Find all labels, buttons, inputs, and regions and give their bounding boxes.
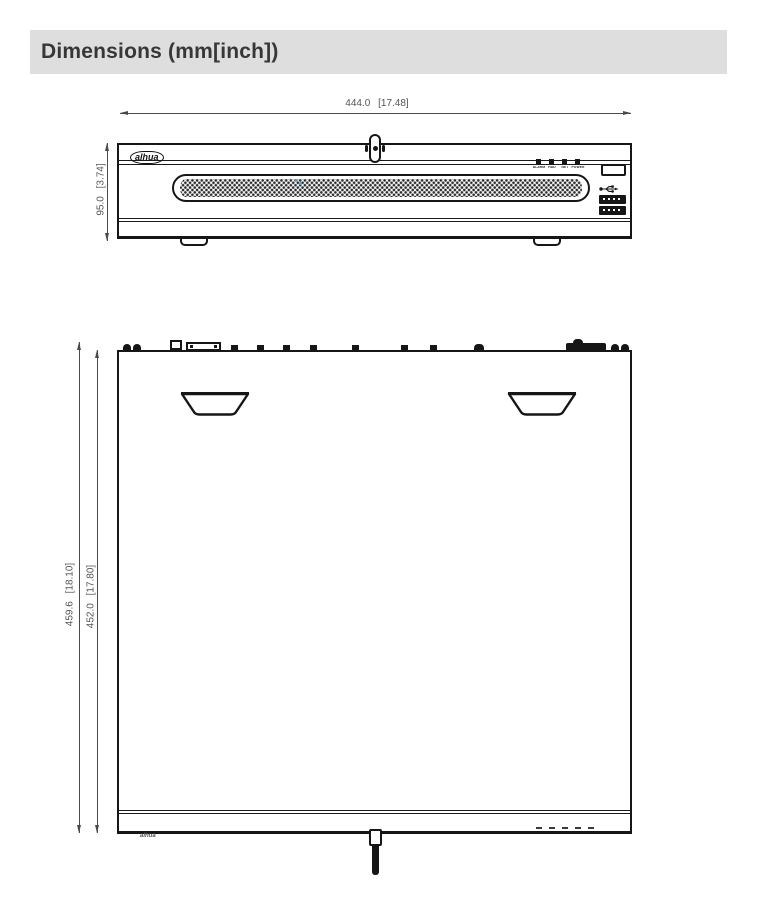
status-dot (295, 179, 298, 182)
usb-pins (603, 198, 622, 200)
bezel-mark (549, 827, 555, 829)
bezel-mark (536, 827, 542, 829)
top-depth-inner-dimension: 452.0 [17.80] (86, 557, 97, 637)
extension-line (100, 142, 117, 143)
brand-logo: alhua (130, 147, 164, 165)
bezel-mark (588, 827, 594, 829)
rear-connector-square (170, 340, 182, 350)
vent-handle-left (179, 391, 251, 418)
arrowhead-down (105, 233, 109, 241)
brand-logo-top-text: alhua (140, 833, 156, 839)
extension-line (100, 240, 117, 241)
usb-pins (603, 209, 622, 211)
led-hdd (549, 159, 554, 164)
arrowhead-down (95, 825, 99, 833)
section-header: Dimensions (mm[inch]) (30, 30, 727, 74)
dimension-line-depth-inner (97, 350, 98, 833)
device-foot-left (180, 239, 208, 246)
led-net (562, 159, 567, 164)
ir-receiver-window (601, 164, 626, 176)
extension-line (72, 341, 574, 342)
panel-seam-line (119, 218, 630, 219)
bezel-seam-line (119, 813, 630, 814)
vent-handle-right (506, 391, 578, 418)
dimensions-diagram-page: Dimensions (mm[inch]) 444.0 [17.48] 95.0… (0, 0, 757, 909)
device-foot-right (533, 239, 561, 246)
top-depth-outer-dimension: 459.6 [18.10] (65, 555, 76, 635)
page-title: Dimensions (mm[inch]) (41, 40, 279, 64)
usb-port-2 (599, 206, 626, 215)
vga-screw (190, 345, 193, 348)
vga-screw (214, 345, 217, 348)
front-width-dimension: 444.0 [17.48] (307, 98, 447, 109)
arrowhead-down (77, 825, 81, 833)
brand-logo-top: alhua (140, 824, 156, 842)
status-dot (299, 182, 302, 185)
led-alarm (536, 159, 541, 164)
top-chassis-body (117, 350, 632, 834)
arrowhead-up (77, 342, 81, 350)
arrowhead-right (623, 111, 631, 115)
key-icon (369, 829, 382, 846)
arrowhead-up (105, 143, 109, 151)
front-height-dimension: 95.0 [3.74] (96, 155, 107, 225)
usb-icon (598, 184, 620, 194)
keyhole-icon (373, 146, 378, 151)
bezel-mark (575, 827, 581, 829)
dimension-line-depth-outer (79, 342, 80, 833)
key-shaft (372, 845, 379, 875)
arrowhead-up (95, 350, 99, 358)
led-label-power: POWER (570, 166, 585, 169)
bezel-mark (562, 827, 568, 829)
arrowhead-left (120, 111, 128, 115)
led-power (575, 159, 580, 164)
lock-nub (382, 145, 385, 152)
usb-port-1 (599, 195, 626, 204)
brand-logo-text: alhua (130, 151, 164, 164)
lock-nub (365, 145, 368, 152)
bezel-seam-line (119, 810, 630, 811)
vent-grille (172, 174, 590, 202)
dimension-line-width (120, 113, 631, 114)
dimension-line-height (107, 143, 108, 241)
panel-seam-line (119, 221, 630, 222)
